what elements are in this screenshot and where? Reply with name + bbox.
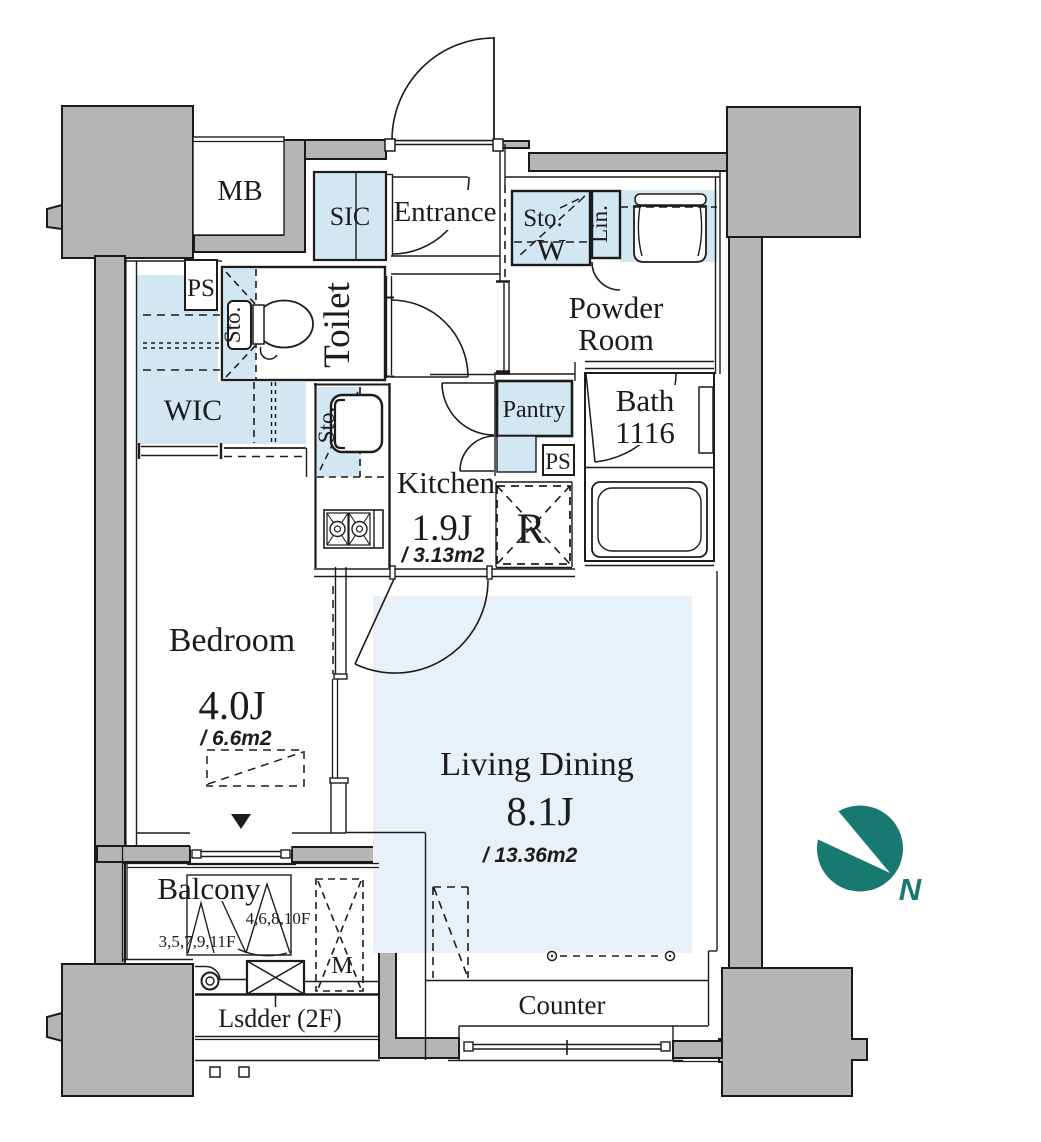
svg-text:N: N	[899, 872, 922, 907]
svg-text:Toilet: Toilet	[317, 281, 358, 367]
svg-text:Sto.: Sto.	[314, 407, 339, 443]
svg-text:1.9J: 1.9J	[412, 508, 473, 549]
svg-text:Lsdder (2F): Lsdder (2F)	[218, 1004, 341, 1033]
svg-text:Powder: Powder	[569, 290, 664, 325]
svg-text:1116: 1116	[615, 415, 675, 450]
svg-text:Lin.: Lin.	[587, 205, 612, 243]
svg-text:/ 3.13m2: / 3.13m2	[401, 544, 485, 567]
svg-text:Entrance: Entrance	[393, 196, 496, 228]
svg-text:3,5,7,9,11F: 3,5,7,9,11F	[159, 932, 236, 951]
svg-text:SIC: SIC	[330, 202, 370, 231]
svg-text:Kitchen: Kitchen	[397, 465, 496, 500]
svg-text:/ 6.6m2: / 6.6m2	[199, 727, 272, 750]
svg-text:Bedroom: Bedroom	[169, 622, 296, 659]
svg-text:Sto.: Sto.	[220, 307, 245, 343]
svg-text:Balcony: Balcony	[157, 871, 261, 906]
svg-text:4,6,8,10F: 4,6,8,10F	[246, 909, 311, 928]
svg-text:PS: PS	[187, 275, 215, 302]
svg-text:Living Dining: Living Dining	[440, 746, 634, 783]
svg-text:R: R	[517, 506, 546, 553]
svg-text:8.1J: 8.1J	[506, 788, 573, 834]
svg-text:Room: Room	[578, 322, 654, 357]
svg-text:Bath: Bath	[616, 383, 675, 418]
svg-text:4.0J: 4.0J	[198, 682, 265, 728]
svg-text:Sto.: Sto.	[523, 205, 563, 232]
svg-text:Pantry: Pantry	[503, 397, 566, 423]
svg-text:/ 13.36m2: / 13.36m2	[482, 844, 578, 867]
svg-text:WIC: WIC	[164, 394, 222, 427]
svg-text:MB: MB	[217, 175, 262, 207]
svg-text:W: W	[536, 232, 566, 267]
svg-text:M: M	[331, 953, 352, 979]
svg-text:PS: PS	[545, 449, 571, 474]
svg-text:Counter: Counter	[519, 990, 606, 1020]
